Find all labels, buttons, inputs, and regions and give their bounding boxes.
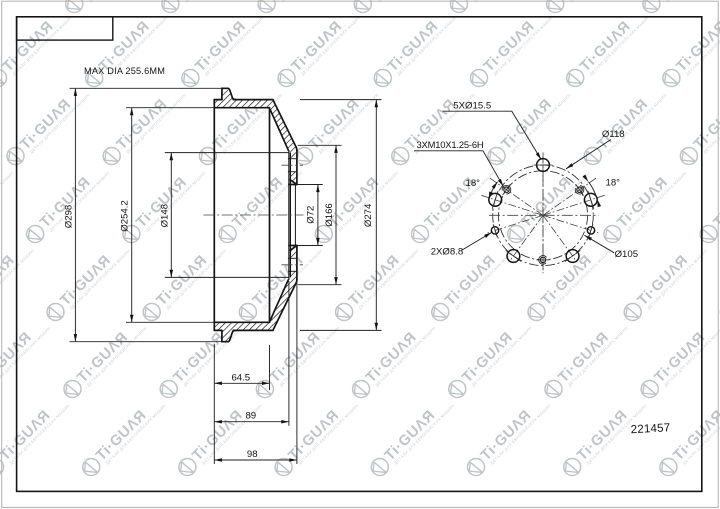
svg-text:98: 98 [247, 449, 258, 460]
svg-text:221457: 221457 [630, 421, 670, 436]
svg-text:2XØ8.8: 2XØ8.8 [431, 247, 464, 258]
svg-text:Ø274: Ø274 [363, 203, 374, 227]
svg-text:MAX DIA 255.6MM: MAX DIA 255.6MM [84, 66, 165, 76]
svg-text:Ø148: Ø148 [159, 204, 170, 227]
svg-text:Ø254.2: Ø254.2 [120, 200, 131, 231]
svg-text:Ø118: Ø118 [602, 129, 625, 140]
svg-text:89: 89 [245, 411, 256, 422]
svg-text:Ø298: Ø298 [64, 205, 75, 228]
svg-text:Ø166: Ø166 [324, 203, 335, 226]
svg-text:64.5: 64.5 [231, 372, 250, 383]
svg-text:3XM10X1.25-6H: 3XM10X1.25-6H [417, 139, 484, 150]
svg-text:18°: 18° [465, 178, 480, 189]
svg-text:18°: 18° [606, 177, 621, 188]
svg-text:5XØ15.5: 5XØ15.5 [453, 100, 491, 111]
svg-text:Ø72: Ø72 [305, 206, 316, 224]
svg-text:Ø105: Ø105 [615, 249, 638, 260]
